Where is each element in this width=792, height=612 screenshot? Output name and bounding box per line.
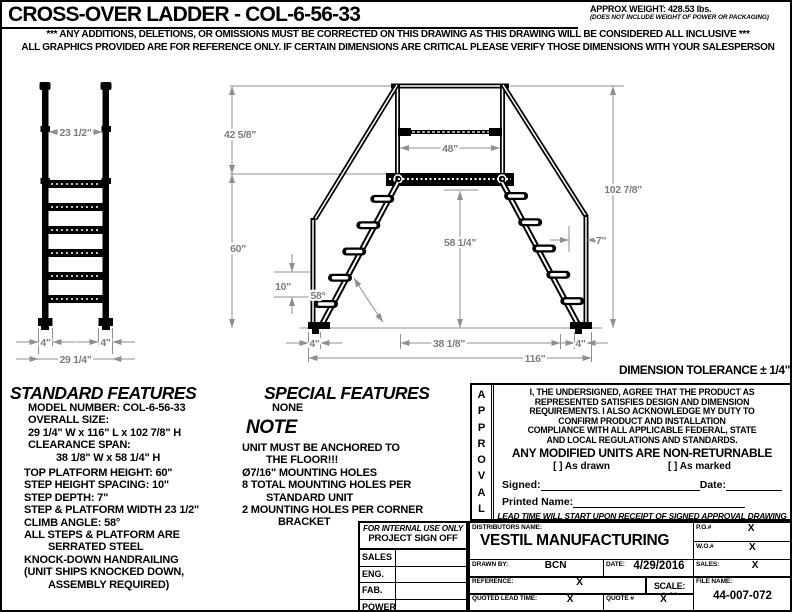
dim-step-depth: 7" (596, 235, 607, 247)
signed-field[interactable] (541, 478, 700, 491)
approval-letter: P (478, 405, 485, 417)
disclaimer-line1: *** ANY ADDITIONS, DELETIONS, OR OMISSIO… (2, 29, 792, 40)
approval-content: I, THE UNDERSIGNED, AGREE THAT THE PRODU… (494, 385, 790, 519)
note-line: 2 MOUNTING HOLES PER CORNER (242, 504, 423, 516)
file-name-cell: FILE NAME: 44-007-072 (693, 576, 792, 612)
feature-line: TOP PLATFORM HEIGHT: 60" (24, 467, 199, 479)
approval-warning: ANY MODIFIED UNITS ARE NON-RETURNABLE (494, 446, 790, 460)
sign-off-row-power: POWER (360, 600, 396, 612)
signature-row: Signed: Date: (502, 478, 782, 491)
table-row: POWER (360, 600, 466, 612)
page-title: CROSS-OVER LADDER - COL-6-56-33 (8, 3, 360, 27)
file-name-label: FILE NAME: (694, 577, 791, 585)
feature-line: 29 1/4" W x 116" L x 102 7/8" H (24, 427, 199, 439)
dim-side-right-foot: 4" (575, 338, 586, 350)
note-line: THE FLOOR!!! (242, 454, 423, 466)
feature-line: CLEARANCE SPAN: (24, 439, 199, 451)
drawing-sheet: CROSS-OVER LADDER - COL-6-56-33 APPROX W… (0, 0, 792, 612)
signed-label: Signed: (502, 479, 541, 491)
power-sign-field[interactable] (396, 600, 466, 612)
standard-features-list: MODEL NUMBER: COL-6-56-33 OVERALL SIZE: … (24, 402, 199, 591)
checkbox-as-drawn[interactable]: [ ] As drawn (553, 461, 610, 472)
quoted-lead-label: QUOTED LEAD TIME: (470, 594, 537, 602)
approval-agreement-text: I, THE UNDERSIGNED, AGREE THAT THE PRODU… (494, 388, 790, 446)
feature-line: STEP & PLATFORM WIDTH 23 1/2" (24, 504, 199, 516)
date-label: DATE: (604, 560, 625, 568)
company-name: VESTIL MANUFACTURING (470, 532, 693, 550)
distributor-cell: DISTRIBUTORS NAME: VESTIL MANUFACTURING (469, 522, 694, 560)
dimension-tolerance-note: DIMENSION TOLERANCE ± 1/4" (600, 363, 790, 377)
distributors-name-label: DISTRIBUTORS NAME: (470, 523, 693, 531)
approval-box: A P P R O V A L I, THE UNDERSIGNED, AGRE… (470, 383, 792, 521)
side-view: 42 5/8" 48" 102 7/8" 60" 10" 58° 58 1/4"… (224, 84, 642, 365)
note-line: Ø7/16" MOUNTING HOLES (242, 467, 423, 479)
approval-letter: A (478, 389, 486, 401)
feature-line: OVERALL SIZE: (24, 414, 199, 426)
approval-letter: V (478, 470, 485, 482)
table-row: ENG. (360, 567, 466, 584)
note-title: NOTE (246, 417, 297, 439)
dim-rail-span: 23 1/2" (59, 127, 91, 139)
approval-letter: L (478, 503, 485, 515)
eng-sign-field[interactable] (396, 567, 466, 583)
dim-climb-angle: 58° (311, 290, 326, 302)
engineering-drawing-views: 23 1/2" 4" 4" 29 1/4" (2, 62, 792, 374)
dim-step-spacing: 10" (275, 281, 291, 293)
dim-overall-height: 102 7/8" (604, 184, 642, 196)
sign-off-row-sales: SALES (360, 550, 396, 566)
printed-name-label: Printed Name: (502, 496, 573, 508)
sign-off-row-fab: FAB. (360, 583, 396, 599)
sign-off-header: FOR INTERNAL USE ONLY PROJECT SIGN OFF (360, 523, 466, 550)
approval-letter: O (477, 454, 486, 466)
standard-features-title: STANDARD FEATURES (10, 383, 196, 404)
feature-line: SERRATED STEEL (24, 541, 199, 553)
feature-line: (UNIT SHIPS KNOCKED DOWN, (24, 566, 199, 578)
dim-overall-length: 116" (525, 353, 546, 365)
feature-line: STEP DEPTH: 7" (24, 492, 199, 504)
sign-off-row-eng: ENG. (360, 567, 396, 583)
dim-platform-height: 60" (230, 243, 246, 255)
special-features-value: NONE (272, 402, 303, 414)
disclaimer-line2: ALL GRAPHICS PROVIDED ARE FOR REFERENCE … (2, 42, 792, 53)
title-block: DISTRIBUTORS NAME: VESTIL MANUFACTURING … (468, 521, 792, 612)
po-label: P.O.# (694, 523, 711, 531)
date-field[interactable] (726, 478, 782, 491)
sales-sign-field[interactable] (396, 550, 466, 566)
feature-line: STEP HEIGHT SPACING: 10" (24, 479, 199, 491)
checkbox-as-marked[interactable]: [ ] As marked (668, 461, 731, 472)
table-row: FAB. (360, 583, 466, 600)
lead-time-note: LEAD TIME WILL START UPON RECEIPT OF SIG… (494, 511, 790, 521)
printed-name-row: Printed Name: (502, 495, 745, 508)
fab-sign-field[interactable] (396, 583, 466, 599)
feature-line: 38 1/8" W x 58 1/4" H (24, 452, 199, 464)
feature-line: MODEL NUMBER: COL-6-56-33 (24, 402, 199, 414)
reference-label: REFERENCE: (470, 577, 513, 585)
quote-label: QUOTE # (604, 594, 634, 602)
dim-front-left-foot: 4" (40, 337, 51, 349)
dim-front-right-foot: 4" (100, 337, 111, 349)
dim-handrail-rise: 42 5/8" (224, 129, 256, 141)
po-cell: P.O.# X (693, 522, 792, 542)
weight-note: (DOES NOT INCLUDE WEIGHT OF POWER OR PAC… (590, 14, 769, 21)
wo-cell: W.O.# X (693, 541, 792, 560)
feature-line: CLIMB ANGLE: 58° (24, 517, 199, 529)
internal-sign-off-table: FOR INTERNAL USE ONLY PROJECT SIGN OFF S… (358, 521, 468, 612)
note-line: STANDARD UNIT (242, 492, 423, 504)
date-label: Date: (700, 479, 726, 491)
approx-weight: APPROX WEIGHT: 428.53 lbs. (590, 4, 711, 14)
dim-front-overall-width: 29 1/4" (59, 354, 91, 366)
wo-label: W.O.# (694, 542, 714, 550)
quote-cell: QUOTE # X (603, 593, 694, 612)
file-name-value: 44-007-072 (694, 585, 791, 602)
note-line: 8 TOTAL MOUNTING HOLES PER (242, 479, 423, 491)
feature-line: KNOCK-DOWN HANDRAILING (24, 554, 199, 566)
printed-name-field[interactable] (573, 495, 745, 508)
approval-letter: R (478, 438, 486, 450)
special-features-title: SPECIAL FEATURES (264, 383, 429, 404)
feature-line: ASSEMBLY REQUIRED) (24, 579, 199, 591)
dim-clearance-span: 38 1/8" (433, 338, 465, 350)
front-view: 23 1/2" 4" 4" 29 1/4" (16, 82, 135, 366)
dim-clearance-height: 58 1/4" (444, 237, 476, 249)
dim-platform-length: 48" (442, 143, 458, 155)
note-list: UNIT MUST BE ANCHORED TO THE FLOOR!!! Ø7… (242, 442, 423, 529)
drawn-by-label: DRAWN BY: (470, 560, 508, 568)
internal-use-label: FOR INTERNAL USE ONLY (360, 523, 466, 533)
note-line: UNIT MUST BE ANCHORED TO (242, 442, 423, 454)
approval-letter: P (478, 422, 485, 434)
dim-side-left-foot: 4" (309, 338, 320, 350)
feature-line: ALL STEPS & PLATFORM ARE (24, 529, 199, 541)
approval-letter: A (478, 487, 486, 499)
approval-checkboxes: [ ] As drawn [ ] As marked (494, 461, 790, 472)
sales-label: SALES: (694, 560, 719, 568)
table-row: SALES (360, 550, 466, 567)
quoted-lead-cell: QUOTED LEAD TIME: X (469, 593, 604, 612)
project-sign-off-label: PROJECT SIGN OFF (360, 533, 466, 544)
approval-side-label: A P P R O V A L (472, 385, 494, 519)
